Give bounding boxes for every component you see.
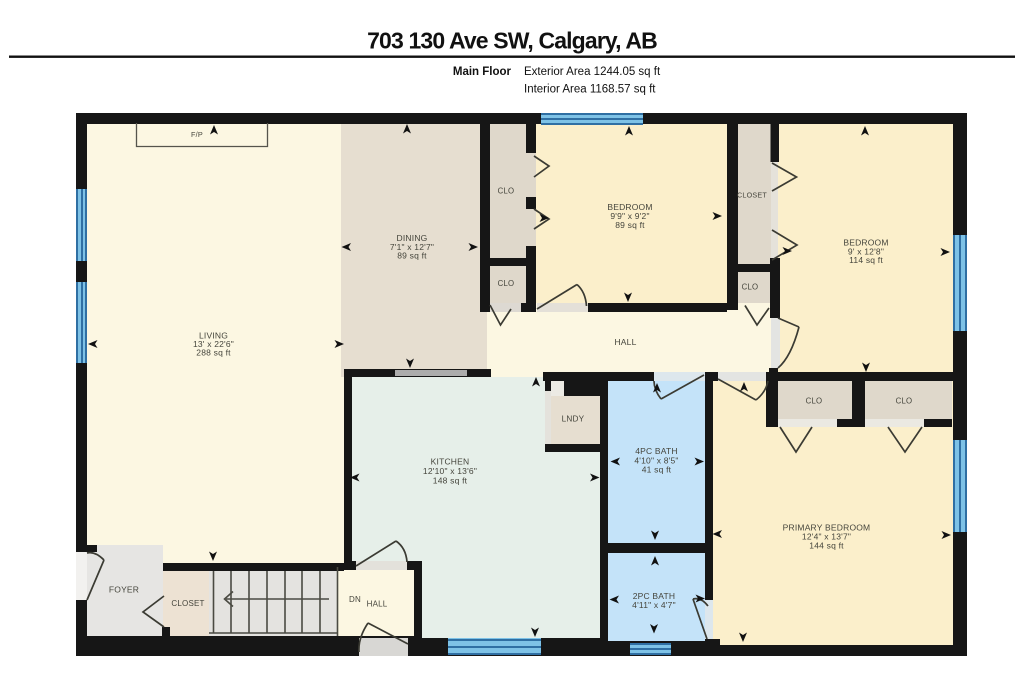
svg-text:DN: DN [349, 595, 361, 604]
svg-text:Exterior Area 1244.05 sq ft: Exterior Area 1244.05 sq ft [524, 66, 661, 78]
svg-text:89 sq ft: 89 sq ft [615, 220, 645, 230]
svg-text:FOYER: FOYER [109, 585, 139, 595]
svg-text:LNDY: LNDY [562, 415, 585, 424]
svg-text:KITCHEN: KITCHEN [431, 457, 470, 467]
svg-text:41 sq ft: 41 sq ft [642, 465, 672, 475]
svg-text:89 sq ft: 89 sq ft [397, 251, 427, 261]
svg-text:CLO: CLO [498, 279, 515, 288]
svg-text:HALL: HALL [614, 337, 636, 347]
svg-text:703 130 Ave SW, Calgary, AB: 703 130 Ave SW, Calgary, AB [367, 28, 657, 54]
svg-text:CLOSET: CLOSET [171, 599, 204, 608]
svg-text:CLO: CLO [806, 397, 823, 406]
svg-text:HALL: HALL [367, 600, 388, 609]
svg-text:CLO: CLO [742, 283, 759, 292]
svg-text:CLO: CLO [498, 187, 515, 196]
svg-text:144 sq ft: 144 sq ft [809, 541, 844, 551]
svg-text:Main Floor: Main Floor [453, 66, 512, 78]
svg-text:4PC BATH: 4PC BATH [635, 446, 678, 456]
svg-text:114 sq ft: 114 sq ft [849, 255, 883, 265]
svg-text:Interior Area 1168.57 sq ft: Interior Area 1168.57 sq ft [524, 84, 656, 96]
svg-text:288 sq ft: 288 sq ft [196, 348, 231, 358]
svg-text:CLOSET: CLOSET [737, 191, 767, 200]
svg-text:148 sq ft: 148 sq ft [433, 476, 468, 486]
svg-text:4'11" x 4'7": 4'11" x 4'7" [632, 600, 676, 610]
svg-text:CLO: CLO [896, 397, 913, 406]
svg-text:F/P: F/P [191, 130, 203, 139]
svg-text:12'10" x 13'6": 12'10" x 13'6" [423, 466, 477, 476]
